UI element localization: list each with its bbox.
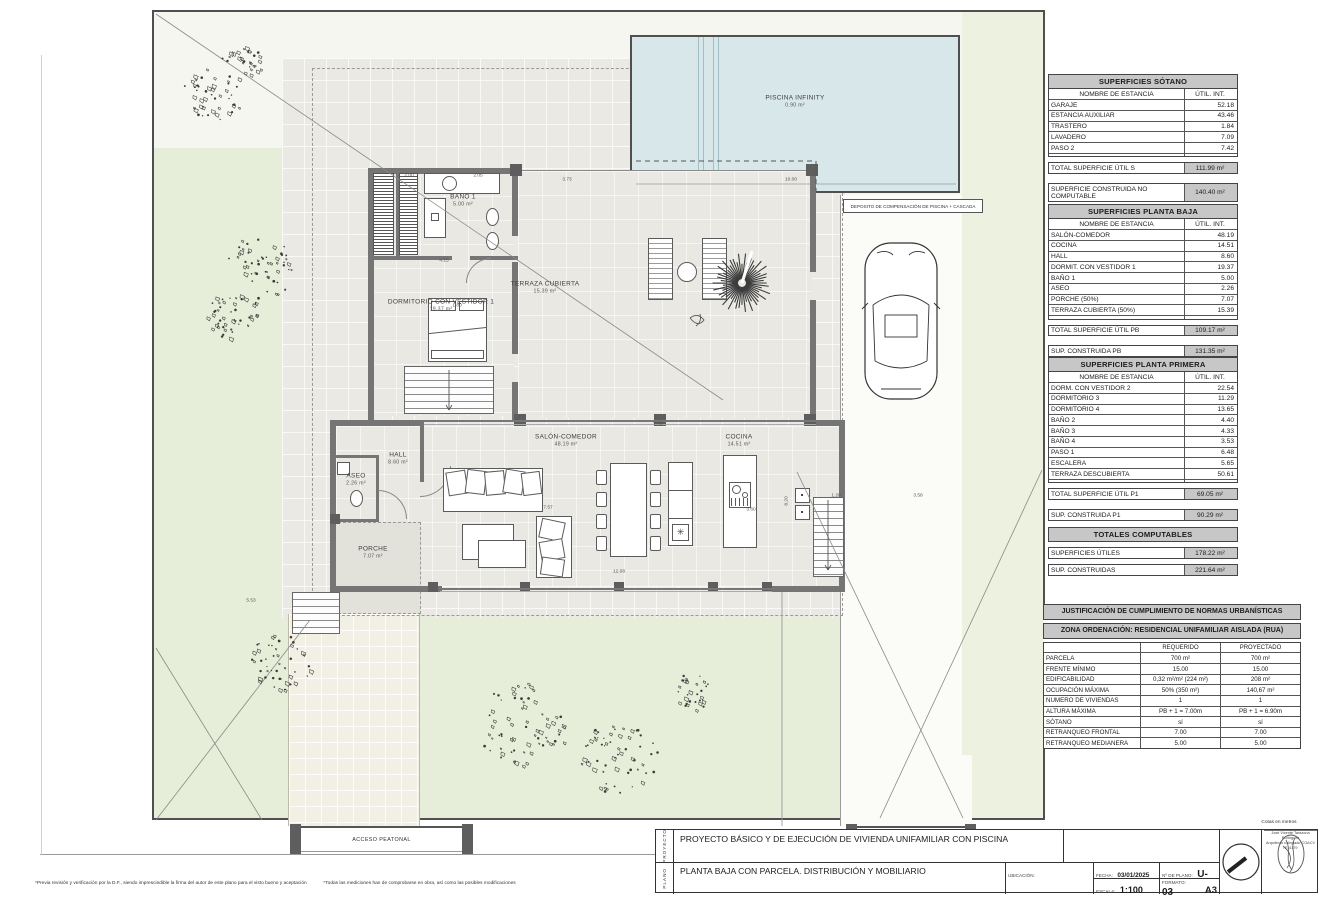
- formato-label: FORMATO:: [1162, 880, 1186, 885]
- sheet-title: PLANTA BAJA CON PARCELA. DISTRIBUCIÓN Y …: [680, 866, 926, 876]
- toilet: [486, 208, 499, 226]
- cooktop-burner: [732, 485, 741, 494]
- table-superficies-planta-baja: SUPERFICIES PLANTA BAJANOMBRE DE ESTANCI…: [1048, 204, 1238, 357]
- dining-chair: [650, 536, 661, 551]
- sofa-cushion: [521, 471, 543, 496]
- pool-label: PISCINA INFINITY 0.90 m²: [765, 95, 824, 110]
- wardrobe: [373, 173, 394, 255]
- dimension-label: 4.15: [439, 259, 448, 264]
- titleblock-empty-cell: [1063, 830, 1219, 862]
- glass-wall: [440, 588, 772, 590]
- room-label: SALÓN-COMEDOR48.19 m²: [535, 434, 597, 449]
- pool-lane-line: [703, 37, 704, 191]
- dining-chair: [596, 514, 607, 529]
- dining-chair: [650, 514, 661, 529]
- garden-right-strip: [962, 12, 1043, 818]
- cotas-note: Cotas en metros: [1240, 820, 1318, 828]
- bed-bench: [431, 350, 484, 359]
- side-table: [677, 262, 697, 282]
- dimension-label: 2.05: [473, 174, 482, 179]
- room-label: HALL8.60 m²: [388, 452, 408, 467]
- glass-wall: [424, 424, 816, 425]
- pier: [510, 164, 522, 176]
- dimension-label: 5.53: [246, 599, 255, 604]
- driveway: [840, 195, 962, 826]
- unit-dot: [801, 494, 803, 496]
- pier: [330, 514, 340, 524]
- north-arrow: [1219, 830, 1261, 894]
- architect-name: José Vicente Tarazona Rodríguez: [1264, 831, 1317, 841]
- dimension-label: 9.82: [653, 422, 662, 427]
- escala-label: ESCALA:: [1096, 889, 1115, 894]
- escala-value: 1:100: [1120, 885, 1143, 895]
- sun-lounger: [648, 238, 673, 300]
- ubicacion-label: UBICACIÓN:: [1008, 873, 1035, 878]
- room-label: TERRAZA CUBIERTA15.39 m²: [511, 281, 580, 296]
- wall: [512, 262, 518, 354]
- pool-compensation-tank: DEPOSITO DE COMPENSACIÓN DE PISCINA + CA…: [843, 199, 983, 213]
- dimension-label: 3.58: [913, 494, 922, 499]
- dimension-label: 3.73: [562, 178, 571, 183]
- freezer-icon: ✳: [672, 524, 689, 541]
- room-label: PORCHE7.07 m²: [358, 546, 388, 561]
- architect-title: Arquitecto colegiado COACV nº14179: [1264, 841, 1317, 851]
- wall: [810, 168, 816, 272]
- dimension-label: 12.08: [613, 570, 625, 575]
- table-totales-computables: TOTALES COMPUTABLESSUPERFICIES ÚTILES178…: [1048, 527, 1238, 576]
- wall: [470, 256, 518, 260]
- dimension-label: 8.20: [785, 496, 790, 505]
- sun-lounger: [702, 238, 727, 300]
- driveway-gate-path: [852, 755, 972, 826]
- dimension-label: 1.80: [452, 304, 461, 309]
- dining-chair: [596, 536, 607, 551]
- gate-peatonal: ACCESO PEATONAL: [293, 826, 470, 852]
- entry-path: [288, 614, 420, 826]
- pool-lane-line: [698, 37, 699, 191]
- wall: [768, 586, 845, 592]
- dining-chair: [596, 470, 607, 485]
- footnote-2: *Todas las mediciones han de comprobarse…: [323, 881, 515, 886]
- table-justificacion-urbanistica: JUSTIFICACIÓN DE CUMPLIMIENTO DE NORMAS …: [1043, 604, 1301, 749]
- gate-post: [462, 824, 473, 854]
- pool-lane-line: [713, 37, 714, 191]
- glass-wall: [424, 420, 816, 422]
- wall: [330, 420, 336, 592]
- pier: [428, 582, 438, 592]
- toilet: [350, 490, 363, 507]
- tall-unit-divider: [669, 490, 692, 491]
- dining-table: [610, 463, 647, 557]
- unit-dot: [801, 511, 803, 513]
- architect-stamp: José Vicente Tarazona Rodríguez Arquitec…: [1261, 830, 1319, 894]
- bath-counter: [424, 173, 500, 194]
- room-label: COCINA14.51 m²: [725, 434, 752, 449]
- wall: [330, 586, 442, 592]
- floor-plan-sheet: PISCINA INFINITY 0.90 m² DEPOSITO DE COM…: [0, 0, 1320, 895]
- sofa-cushion: [540, 556, 565, 577]
- dimension-label: 10.00: [785, 178, 797, 183]
- dining-chair: [596, 492, 607, 507]
- pier: [806, 164, 818, 176]
- footnotes: *Previa revisión y verificación por la D…: [35, 881, 655, 886]
- dimension-label: 2.00: [404, 174, 413, 179]
- dining-chair: [650, 492, 661, 507]
- room-label: BAÑO 15.00 m²: [450, 194, 476, 209]
- shower-drain: [431, 213, 439, 221]
- coffee-table: [478, 540, 526, 568]
- porch-steps: [292, 592, 340, 634]
- room-label: DORMITORIO CON VESTIDOR 119.37 m²: [388, 299, 494, 314]
- tall-unit-divider: [669, 518, 692, 519]
- wall: [330, 420, 424, 426]
- project-title: PROYECTO BÁSICO Y DE EJECUCIÓN DE VIVIEN…: [680, 834, 1008, 844]
- dimension-label: 7.57: [543, 506, 552, 511]
- wall: [512, 168, 518, 236]
- cooktop-grill: [731, 498, 749, 506]
- title-block: PROYECTO PLANO PROYECTO BÁSICO Y DE EJEC…: [655, 829, 1318, 893]
- table-superficies-planta-primera: SUPERFICIES PLANTA PRIMERANOMBRE DE ESTA…: [1048, 357, 1238, 521]
- glass-wall: [440, 591, 772, 592]
- porch-floor: [333, 522, 421, 614]
- bidet: [486, 232, 499, 250]
- gate-post: [290, 824, 301, 854]
- garden-left: [154, 148, 282, 818]
- dimension-label: 1.20: [831, 494, 840, 499]
- proyecto-vertical-label: PROYECTO: [662, 829, 667, 863]
- room-label: ASEO2.26 m²: [346, 473, 366, 488]
- wall: [810, 300, 816, 424]
- wall: [333, 455, 379, 458]
- dimension-label: 3.60: [746, 508, 755, 513]
- formato-value: A3: [1205, 885, 1217, 896]
- wardrobe: [399, 173, 418, 255]
- table-superficies-sotano: SUPERFICIES SÓTANONOMBRE DE ESTANCIAÚTIL…: [1048, 74, 1238, 202]
- dining-chair: [650, 470, 661, 485]
- margin-line: [41, 55, 42, 855]
- bath-sink: [442, 176, 457, 191]
- interior-stair: [404, 366, 494, 414]
- plano-vertical-label: PLANO: [662, 868, 667, 889]
- pool-lane-line: [718, 37, 719, 191]
- footnote-1: *Previa revisión y verificación por la D…: [35, 881, 307, 886]
- exterior-stair-east: [813, 497, 844, 577]
